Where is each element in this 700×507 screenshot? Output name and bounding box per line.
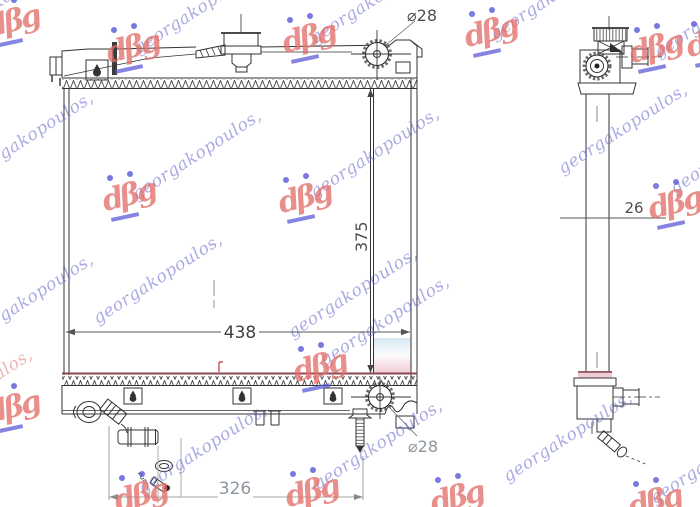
drain-hardware (138, 438, 181, 503)
dim-core-thickness: 26 (624, 199, 643, 217)
mounting-hole-icon (93, 64, 101, 77)
outlet-leader-line (388, 406, 417, 436)
side-core-column (586, 94, 609, 372)
side-top-tank (578, 16, 662, 94)
mounting-tab (324, 388, 342, 404)
dim-core-width: 438 (224, 323, 256, 343)
dim-top-inlet-diameter: ⌀28 (407, 6, 437, 25)
dim-bottom-outlet-diameter: ⌀28 (408, 437, 438, 456)
front-view (50, 14, 422, 503)
mounting-tab (124, 388, 142, 404)
filler-cap (221, 14, 261, 72)
drain-cock-assembly (74, 399, 159, 447)
mounting-tab (233, 388, 251, 404)
dim-mounting-span: 326 (219, 479, 251, 499)
side-bottom-tank (574, 372, 660, 465)
drain-bolt (349, 409, 371, 453)
radiator-drawing-canvas: ⌀28 375 438 ⌀28 326 26 georgakopoulos, g… (0, 0, 700, 507)
radiator-technical-drawing: ⌀28 375 438 ⌀28 326 26 (0, 0, 700, 507)
dim-core-height: 375 (352, 221, 371, 252)
side-view (560, 16, 666, 465)
top-fin-band (62, 79, 417, 88)
bottom-fin-band (62, 376, 417, 385)
